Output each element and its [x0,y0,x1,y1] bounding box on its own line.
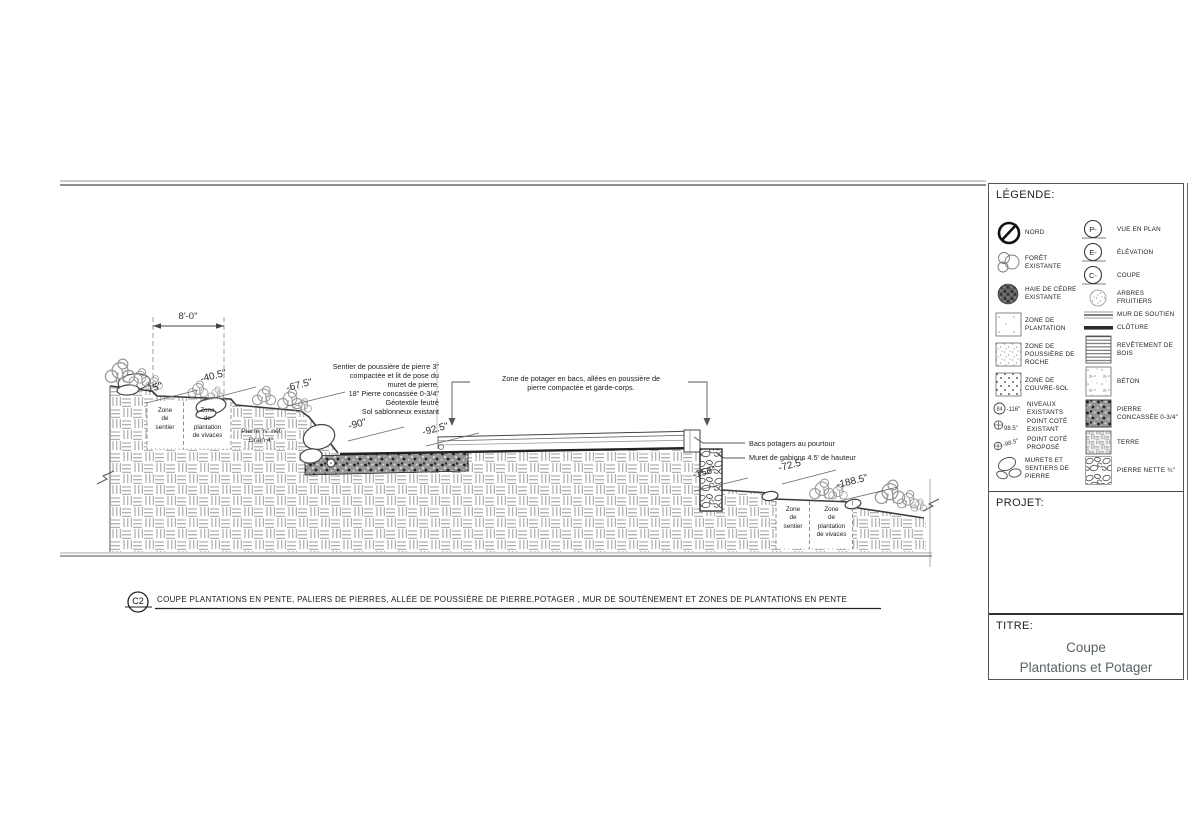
legend-label: ZONE DE POUSSIÈRE DE ROCHE [1025,343,1081,367]
clean-stone-swatch [1081,456,1117,486]
legend-item-foret: FORÊT EXISTANTE [993,248,1081,278]
project-label: PROJET: [989,492,1183,509]
levels-symbol: 84 [996,407,1002,413]
retaining-wall-icon [1081,309,1117,321]
legend-label: COUPE [1117,272,1140,280]
legend-item-poussiere: ZONE DE POUSSIÈRE DE ROCHE [993,340,1081,370]
legend-item-arbres: ARBRES FRUITIERS [1081,287,1181,308]
legend-item-haie: HAIE DE CÈDRE EXISTANTE [993,278,1081,310]
legend-section: LÉGENDE: NORD FORÊT EXISTANTE [989,184,1183,491]
legend-item-pierre-nette: PIERRE NETTE ¾" [1081,456,1181,486]
legend-label: MURETS ET SENTIERS DE PIERRE [1025,457,1081,481]
zone-label-right-path: Zone de sentier [776,506,810,531]
legend-label: NORD [1025,229,1044,237]
info-panel: LÉGENDE: NORD FORÊT EXISTANTE [988,183,1184,680]
existing-forest-icon [993,250,1025,276]
legend-title: LÉGENDE: [989,184,1183,201]
legend-item-cloture: CLÔTURE [1081,321,1181,334]
legend-item-point-existant: 98.5" POINT COTÉ EXISTANT [993,417,1081,435]
elevation-symbol: E- [1089,247,1097,256]
project-section: PROJET: [989,491,1183,613]
groundcover-zone-swatch [993,372,1025,398]
legend-label: REVÊTEMENT DE BOIS [1117,342,1181,358]
section-tag: C2 [127,596,149,606]
legend-item-nord: NORD [993,218,1081,248]
legend-label: HAIE DE CÈDRE EXISTANTE [1025,286,1081,302]
crushed-stone-swatch [1081,399,1117,429]
zone-label-right-planting: Zone de plantation de vivaces [810,506,853,539]
page-bottom-rules [60,553,932,556]
dimension-label: 8'-0" [150,311,226,322]
spot-proposed-value: -98.5" [1002,438,1020,448]
drain-pipe [327,459,335,467]
legend-label: ÉLÉVATION [1117,249,1153,257]
proposed-spot-elevation-icon: -98.5" [993,435,1027,453]
legend-label: PIERRE NETTE ¾" [1117,467,1175,475]
section-view-icon: C- [1081,265,1117,287]
cedar-hedge-icon [993,282,1025,306]
legend-item-vue-en-plan: P- VUE EN PLAN [1081,218,1181,241]
legend-item-point-propose: -98.5" POINT COTÉ PROPOSÉ [993,435,1081,453]
section-symbol: C- [1089,270,1097,279]
legend-label: ZONE DE PLANTATION [1025,317,1081,333]
legend-label: TERRE [1117,439,1139,447]
right-break-mark [923,499,939,511]
title-section: TITRE: Coupe Plantations et Potager & [989,613,1183,680]
legend-label: ZONE DE COUVRE-SOL [1025,377,1081,393]
legend-label: VUE EN PLAN [1117,226,1161,234]
concrete-swatch [1081,366,1117,398]
sheet-title: Coupe Plantations et Potager & [989,638,1183,680]
legend-label: PIERRE CONCASSÉE 0-3/4" [1117,406,1181,422]
planting-zone-swatch [993,312,1025,338]
levels-value: -116" [1007,407,1021,413]
fence-icon [1081,324,1117,332]
existing-levels-icon: 84-116" [993,401,1027,416]
stone-drain-note: Pierre ¾" net Drain 4" [228,428,294,446]
elevation-view-icon: E- [1081,242,1117,264]
gabion-wall [700,449,722,511]
fruit-trees-icon [1081,288,1117,308]
legend-item-mur-soutien: MUR DE SOUTIEN [1081,308,1181,321]
planter-boxes-note: Bacs potagers au pourtour [749,439,835,448]
legend-item-elevation: E- ÉLÉVATION [1081,241,1181,264]
zone-label-left-planting: Zone de plantation de vivaces [184,407,231,440]
potager-zone-note: Zone de potager en bacs, allées en pouss… [468,374,694,393]
drawing-caption: COUPE PLANTATIONS EN PENTE, PALIERS DE P… [157,595,847,604]
legend-item-terre: TERRE [1081,429,1181,456]
legend-label: BÉTON [1117,378,1140,386]
legend-label: CLÔTURE [1117,324,1149,332]
legend-item-revetement: REVÊTEMENT DE BOIS [1081,334,1181,365]
legend-label: FORÊT EXISTANTE [1025,255,1081,271]
drawing-sheet: 8'-0" -15" -40.5" -67.5" -90" -92.5" -15… [0,0,1190,835]
legend-item-concassee: PIERRE CONCASSÉE 0-3/4" [1081,398,1181,429]
legend-item-coupe: C- COUPE [1081,264,1181,287]
panel-outer-border [1187,183,1188,680]
gabion-wall-note: Muret de gabions 4.5' de hauteur [749,453,856,462]
zone-label-left-path: Zone de sentier [147,407,183,432]
legend-column-1: NORD FORÊT EXISTANTE HAIE DE CÈDRE EXIST… [993,218,1081,486]
legend-label: NIVEAUX EXISTANTS [1027,401,1081,417]
legend-label: POINT COTÉ EXISTANT [1027,418,1081,434]
page-top-rules [60,181,986,185]
rock-dust-zone-swatch [993,342,1025,368]
plan-view-icon: P- [1081,219,1117,241]
legend-label: POINT COTÉ PROPOSÉ [1027,436,1081,452]
legend-item-niveaux: 84-116" NIVEAUX EXISTANTS [993,400,1081,417]
legend-column-2: P- VUE EN PLAN E- ÉLÉVATION C- [1081,218,1181,486]
stone-walls-paths-icon [993,455,1025,483]
soil-swatch [1081,430,1117,456]
title-label: TITRE: [989,615,1183,632]
existing-spot-elevation-icon: 98.5" [993,418,1027,434]
spot-existing-value: 98.5" [1004,426,1018,432]
legend-label: MUR DE SOUTIEN [1117,311,1174,319]
dimension-8ft [153,317,224,399]
legend-label: ARBRES FRUITIERS [1117,290,1181,306]
legend-item-zone-plantation: ZONE DE PLANTATION [993,310,1081,340]
legend-item-beton: BÉTON [1081,365,1181,398]
wood-cladding-swatch [1081,335,1117,365]
legend-item-murets: MURETS ET SENTIERS DE PIERRE [993,453,1081,485]
legend-item-couvre-sol: ZONE DE COUVRE-SOL [993,370,1081,400]
north-icon [993,220,1025,246]
plan-symbol: P- [1089,224,1097,233]
path-construction-note: Sentier de poussière de pierre 3" compac… [287,362,439,416]
